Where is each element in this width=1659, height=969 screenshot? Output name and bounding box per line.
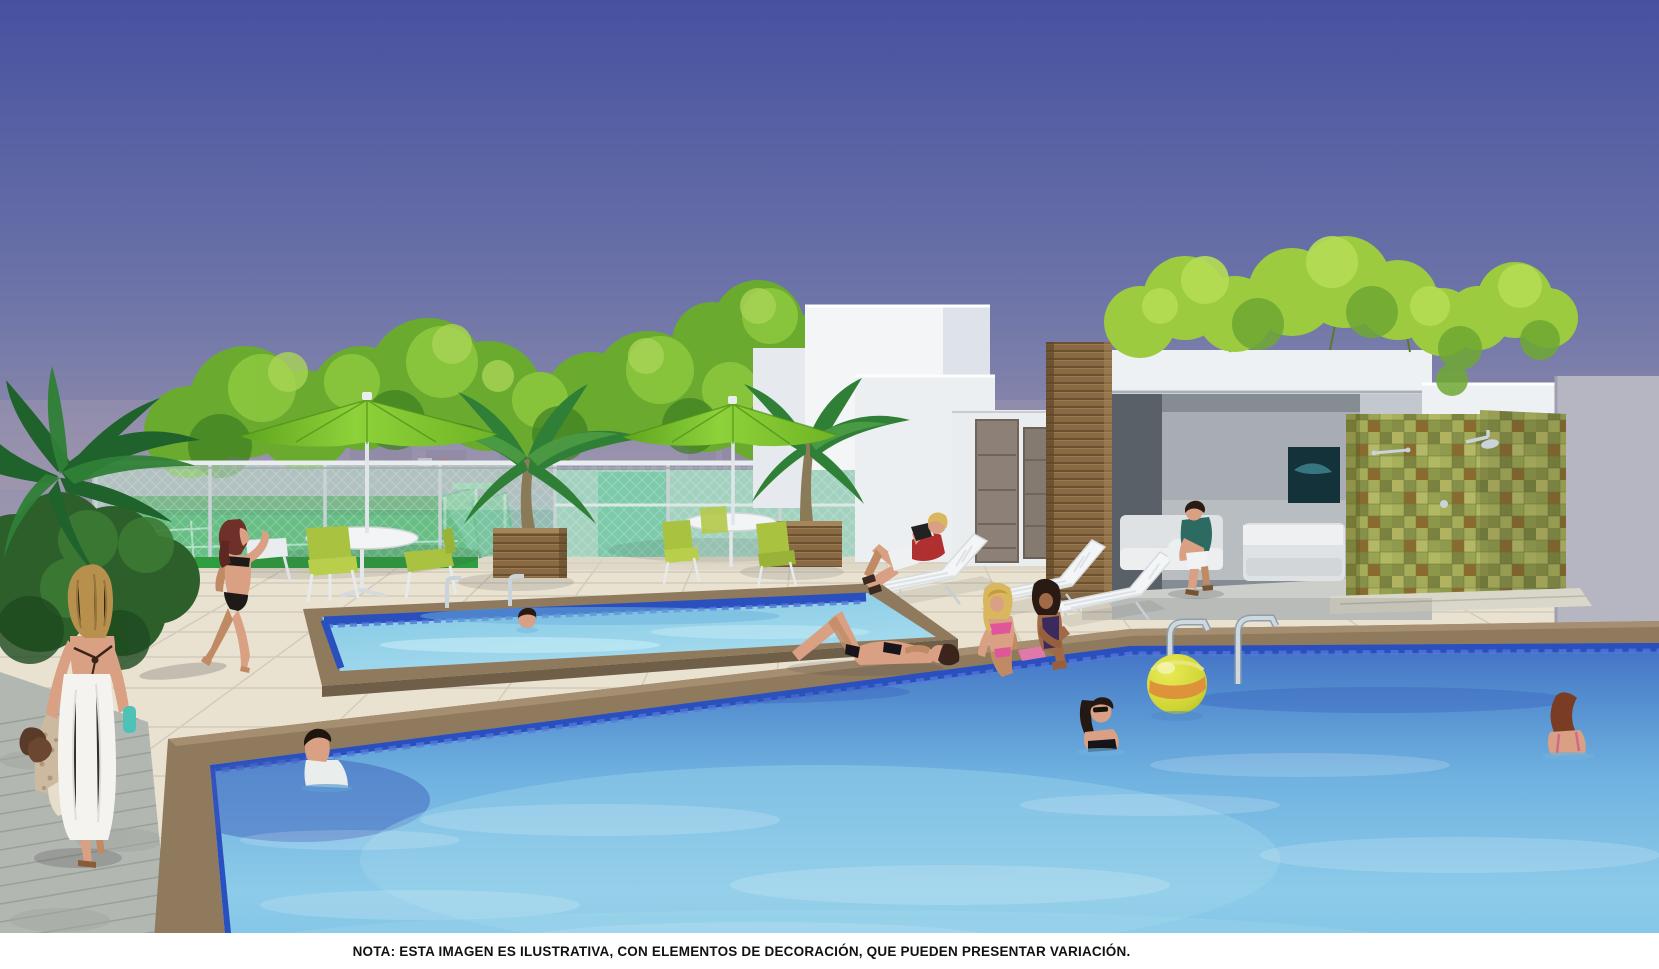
chair	[700, 506, 728, 534]
disclaimer-text: NOTA: ESTA IMAGEN ES ILUSTRATIVA, CON EL…	[0, 944, 1483, 959]
rendering-canvas: NOTA: ESTA IMAGEN ES ILUSTRATIVA, CON EL…	[0, 0, 1659, 969]
disclaimer-bar: NOTA: ESTA IMAGEN ES ILUSTRATIVA, CON EL…	[0, 933, 1659, 969]
pool-scene	[0, 0, 1659, 969]
cabana-sofa-right	[1243, 523, 1345, 581]
shower-knob	[1440, 500, 1448, 508]
wall-artwork	[1288, 447, 1340, 503]
shower-wall	[1330, 410, 1592, 614]
